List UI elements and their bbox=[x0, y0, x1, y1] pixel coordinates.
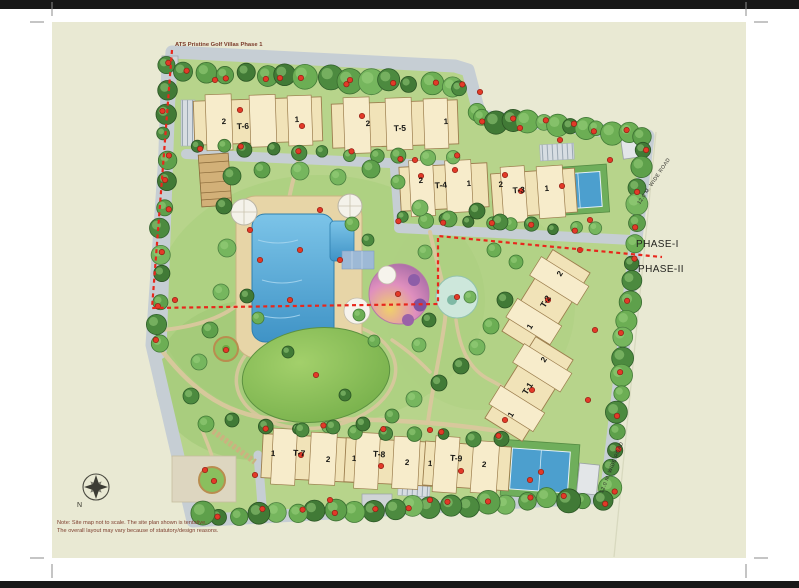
scan-black-bar-bottom bbox=[0, 581, 799, 588]
play-pod-1 bbox=[408, 274, 420, 286]
play-white-circle bbox=[378, 266, 396, 284]
tower-t3-label: T-3 bbox=[512, 185, 525, 196]
site-plan-canvas: 2 T-6 1 2 T-5 1 2 T-4 1 2 T-3 1 2 T-2 1 … bbox=[0, 0, 799, 588]
tower-t6-building bbox=[193, 91, 323, 151]
swimming-pool bbox=[252, 214, 334, 342]
gate-house-bottom bbox=[576, 463, 599, 495]
note-line-1: Note: Site map not to scale. The site pl… bbox=[57, 520, 207, 526]
tower-t9-label: T-9 bbox=[450, 453, 463, 464]
adjacent-project-label: ATS Pristine Golf Villas Phase 1 bbox=[175, 42, 263, 48]
tower-t7-label: T-7 bbox=[293, 448, 306, 459]
tower-t5-label: T-5 bbox=[394, 123, 407, 133]
phase-ii-label: PHASE-II bbox=[638, 264, 684, 275]
compass-north-label: N bbox=[77, 502, 82, 509]
parking-bay-2 bbox=[540, 143, 575, 161]
scan-black-bar-top bbox=[0, 0, 799, 9]
paved-court-grid bbox=[342, 251, 374, 269]
phase-i-label: PHASE-I bbox=[636, 239, 679, 250]
play-pod-3 bbox=[402, 314, 414, 326]
note-line-2: The overall layout may vary because of s… bbox=[57, 528, 219, 534]
tower-t6-label: T-6 bbox=[237, 121, 250, 131]
scanned-site-map-page: 2 T-6 1 2 T-5 1 2 T-4 1 2 T-3 1 2 T-2 1 … bbox=[0, 0, 799, 588]
tower-t8-label: T-8 bbox=[373, 449, 386, 460]
tower-t4-label: T-4 bbox=[434, 180, 447, 191]
parking-bay-4 bbox=[181, 100, 195, 146]
